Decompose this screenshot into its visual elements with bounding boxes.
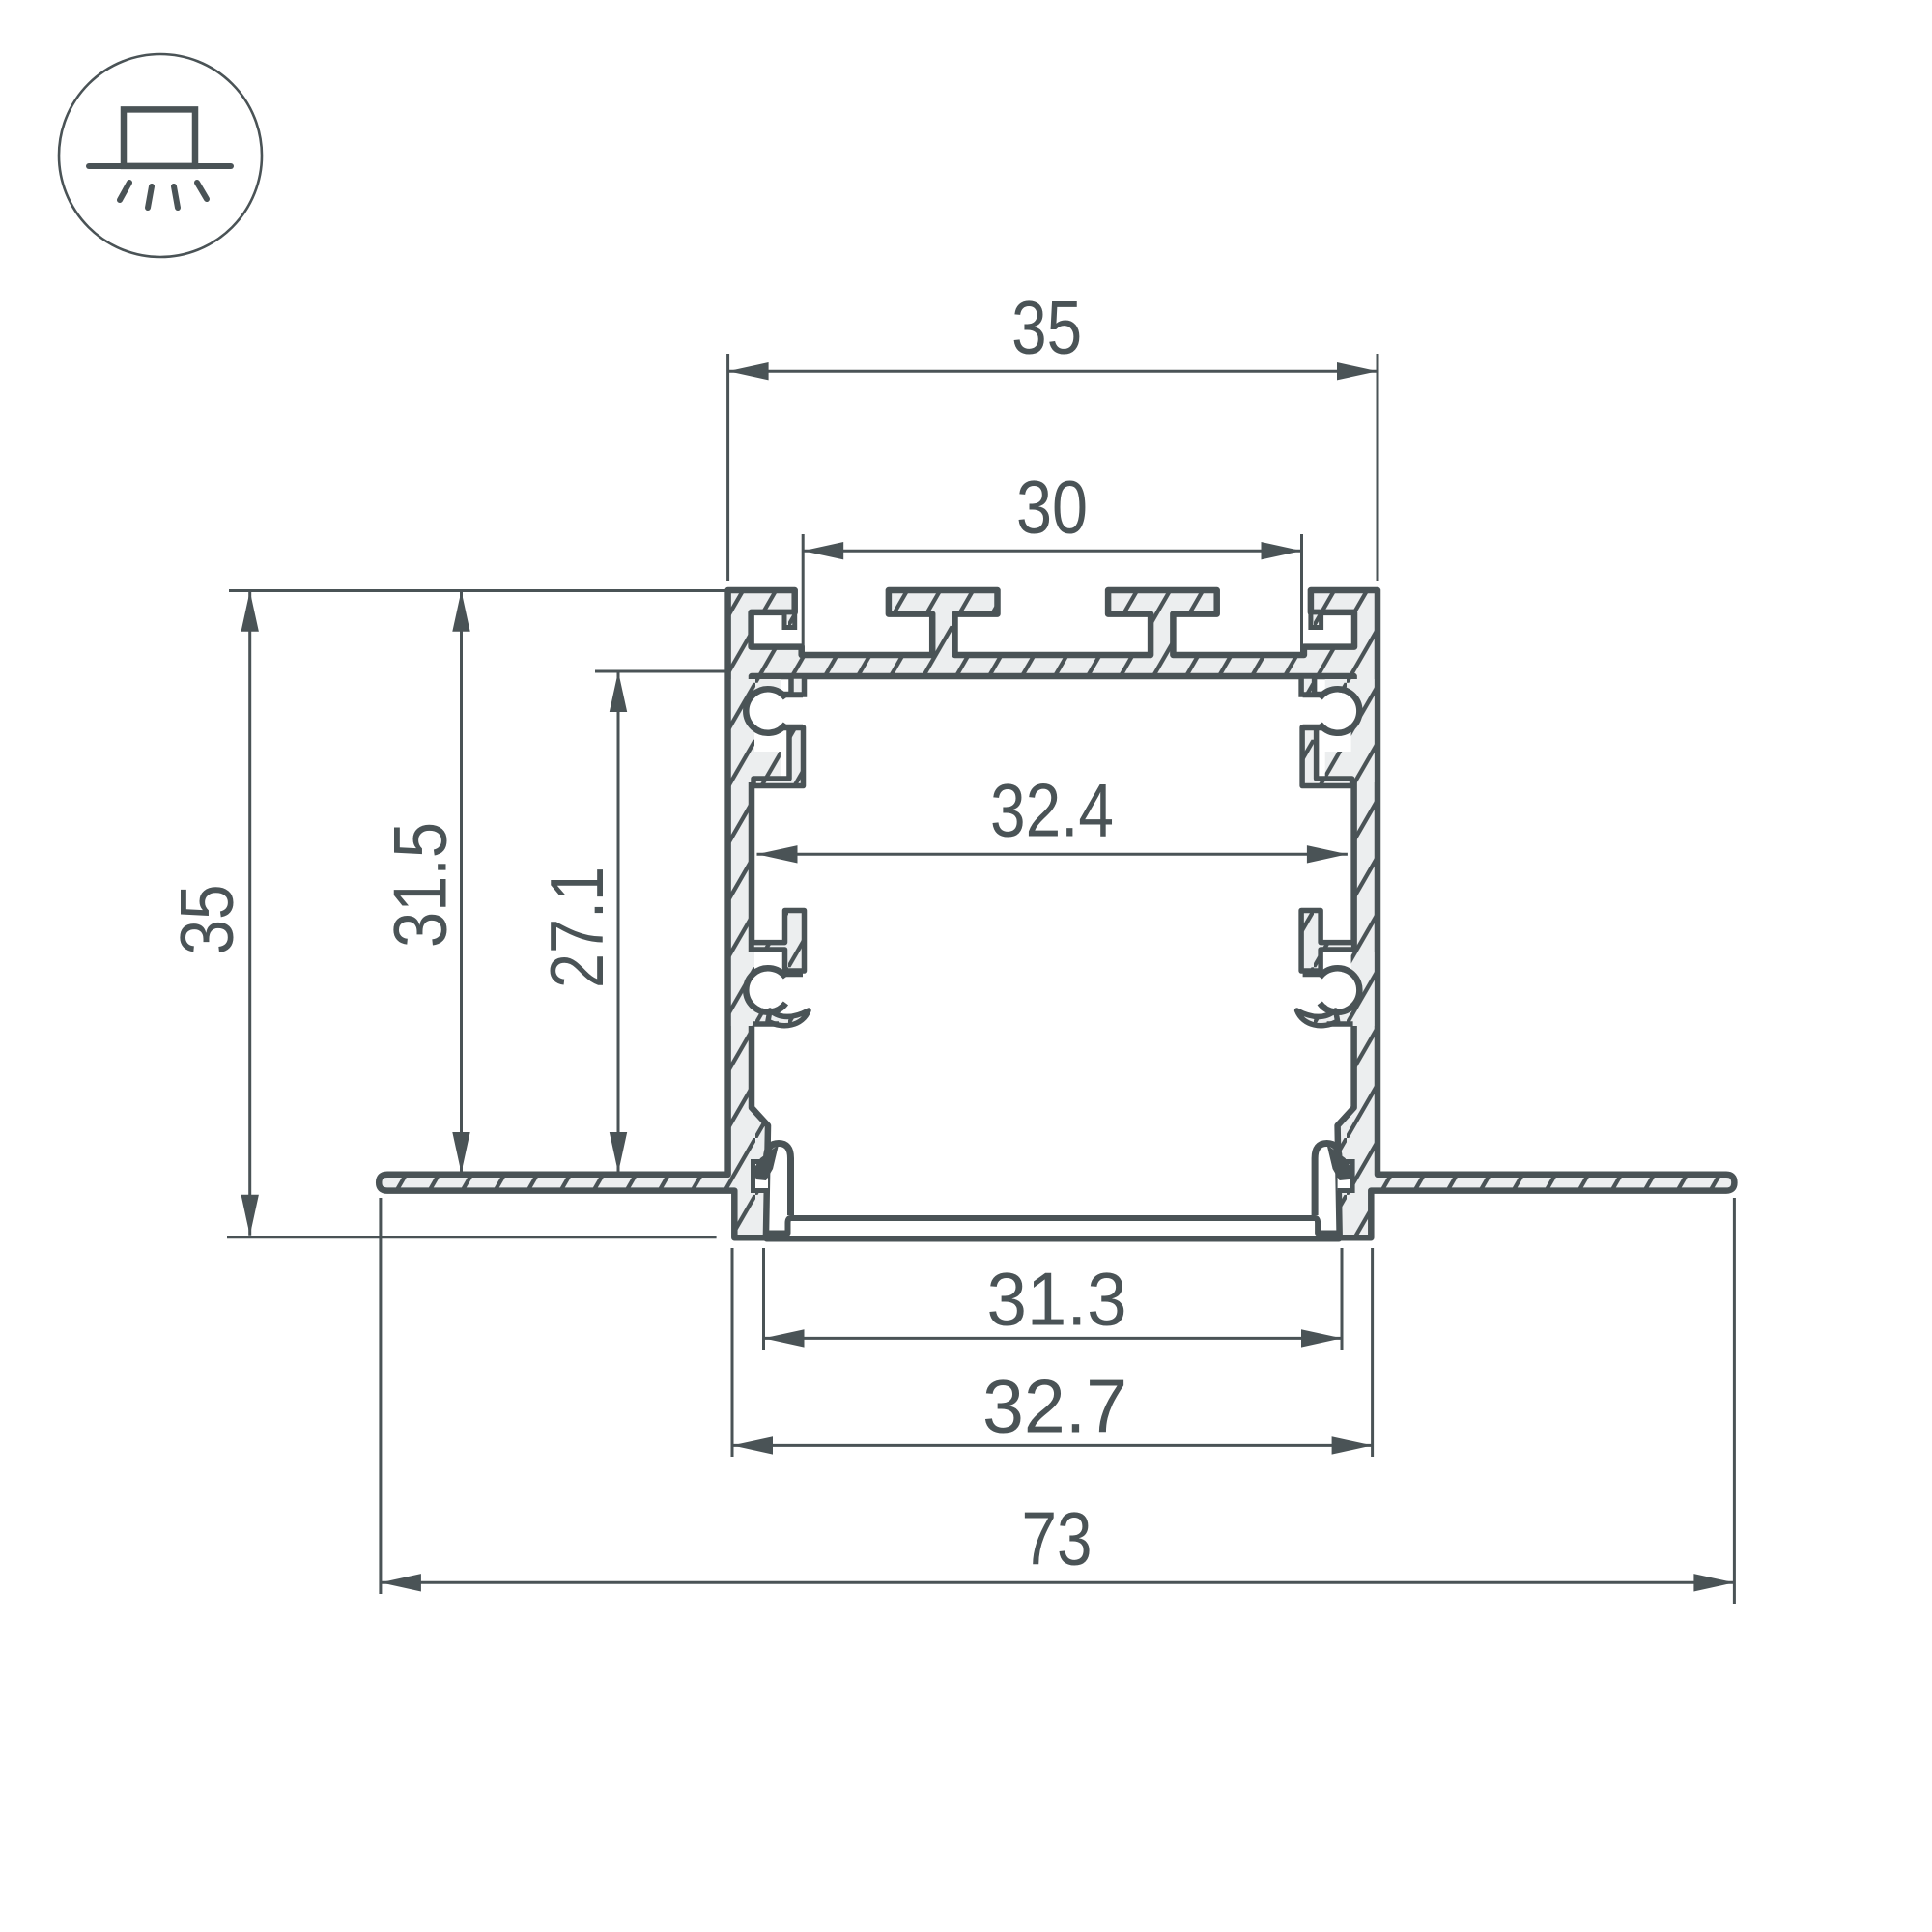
svg-text:31.5: 31.5 [378, 822, 463, 948]
svg-text:32.7: 32.7 [982, 1364, 1127, 1449]
svg-text:27.1: 27.1 [534, 867, 619, 988]
svg-text:35: 35 [1011, 285, 1082, 370]
svg-text:30: 30 [1016, 465, 1088, 550]
svg-text:31.3: 31.3 [987, 1257, 1127, 1342]
svg-text:35: 35 [164, 885, 249, 955]
svg-text:32.4: 32.4 [990, 768, 1114, 853]
svg-text:73: 73 [1022, 1496, 1093, 1581]
